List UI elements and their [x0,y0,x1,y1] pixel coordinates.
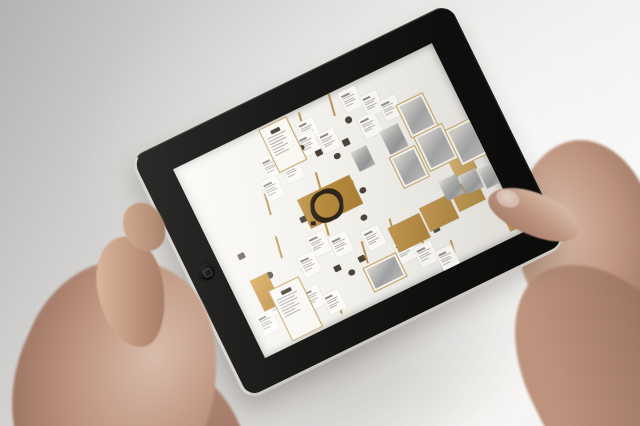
tiny-logo-mark [237,252,246,261]
tiny-logo-mark [332,152,341,161]
tiny-logo-mark [315,149,324,158]
divider-flourish-line [328,93,337,116]
text-thumbnail-card [357,111,383,139]
corner-mark-icon [311,221,317,225]
text-thumbnail-card [328,230,354,258]
thumbnail-nail [494,186,523,211]
tiny-logo-mark [359,213,368,222]
framed-photo-image [399,96,435,135]
photo-thumbnail [351,145,376,171]
tiny-logo-mark [333,264,342,273]
text-thumbnail-card [434,244,460,272]
home-button-square-icon [202,267,213,278]
framed-photo-image [392,149,426,186]
text-thumbnail-card [260,175,286,203]
tiny-logo-mark [342,138,351,147]
tiny-logo-mark [348,268,357,277]
tiny-logo-mark [344,116,353,125]
photo-scene [0,0,640,426]
tiny-logo-mark [359,186,368,195]
framed-photo-image [366,256,404,289]
divider-flourish-line [275,236,284,259]
home-button-icon [196,261,217,282]
wreath-logo-icon [307,185,348,225]
gold-card-wreath-logo [297,175,363,230]
text-thumbnail-card [321,288,347,316]
